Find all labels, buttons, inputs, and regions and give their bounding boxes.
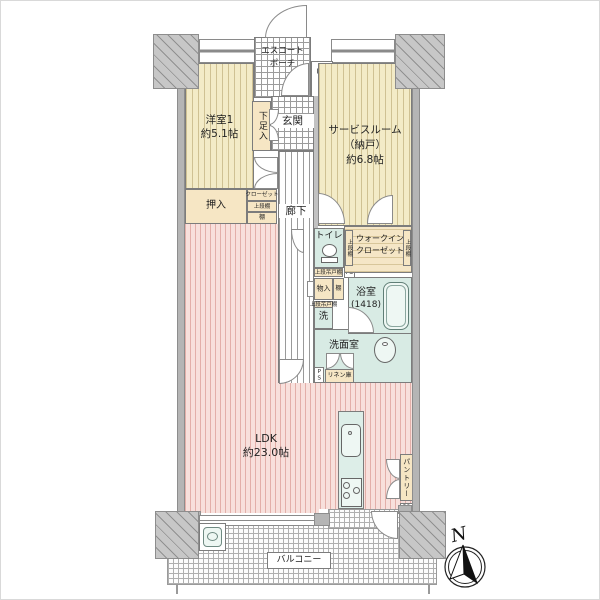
porch-entry-door <box>265 5 307 38</box>
corner-block-top-right <box>395 34 445 89</box>
washbasin-faucet-icon <box>382 342 388 346</box>
escort-porch-label-1: エスコート <box>254 45 311 58</box>
washbasin-icon <box>374 337 396 363</box>
closet-upper-shelf-label: 上段棚 <box>254 203 271 209</box>
toilet-label: トイレ <box>314 230 344 242</box>
ldk-name: LDK <box>231 432 301 446</box>
closet-shelf-label: 棚 <box>253 214 271 221</box>
linen-cabinet-label: リネン庫 <box>330 372 350 380</box>
compass-north-label: N <box>448 523 471 548</box>
laundry-upper-cabinet-label: 上段吊戸棚 <box>316 301 331 307</box>
kitchen-faucet-icon <box>348 431 352 435</box>
balcony-fence-post <box>428 585 430 594</box>
wic-shelf-left-label: 上段棚 <box>346 238 353 258</box>
washroom-label: 洗面室 <box>321 339 367 353</box>
bathtub-inner-icon <box>386 285 406 327</box>
closet-label: クローゼット <box>254 192 271 199</box>
stove-burner-icon <box>343 482 350 489</box>
corner-block-bottom-left <box>155 511 199 559</box>
compass-icon: N <box>437 521 495 597</box>
western1-name: 洋室1 <box>185 113 254 127</box>
stove-burner-icon <box>353 487 360 494</box>
wall-left <box>177 61 185 513</box>
toilet-upper-cabinet-label: 上段吊戸棚 <box>320 269 337 275</box>
kitchen-sink-icon <box>341 424 361 457</box>
window-top-right <box>331 39 395 63</box>
western1-door-lower <box>254 173 278 189</box>
toilet-tank-icon <box>321 257 338 263</box>
oshiire-label: 押入 <box>185 199 247 213</box>
service-room-name: サービスルーム <box>318 123 412 137</box>
corridor-label: 廊下 <box>279 204 313 218</box>
western1-door-upper <box>254 157 278 173</box>
wall-corridor-service <box>314 96 318 228</box>
laundry-label: 洗 <box>314 310 333 324</box>
service-room-nando: （納戸） <box>318 138 412 152</box>
wic-shelf-right-label: 上段棚 <box>404 238 411 258</box>
wall-right <box>412 61 420 513</box>
bathroom-name: 浴室 <box>350 286 382 299</box>
service-room-size: 約6.8帖 <box>318 153 412 167</box>
wic-label-2: クローゼット <box>352 245 408 256</box>
toilet-icon <box>322 244 337 257</box>
balcony-fence-post <box>176 585 178 594</box>
balcony-label: バルコニー <box>267 552 331 569</box>
wic-label-1: ウォークイン <box>352 233 408 244</box>
storage-door <box>307 281 314 297</box>
washroom-ps-label: PS <box>315 370 323 380</box>
corner-block-top-left <box>153 34 199 89</box>
storage-shelf-label: 棚 <box>335 282 342 295</box>
window-top-left <box>199 39 258 63</box>
western1-size: 約5.1帖 <box>185 127 254 141</box>
wall-bottom-step <box>314 513 330 526</box>
ldk-size: 約23.0帖 <box>231 446 301 460</box>
storage-label: 物入 <box>316 281 331 296</box>
floor-plan: エスコート ポーチ MB PS 洋室1 約5.1帖 下足入 玄関 サービスルーム… <box>0 0 600 600</box>
stove-burner-icon <box>343 492 350 499</box>
slop-sink-bowl-icon <box>207 532 218 541</box>
corridor <box>278 151 314 384</box>
